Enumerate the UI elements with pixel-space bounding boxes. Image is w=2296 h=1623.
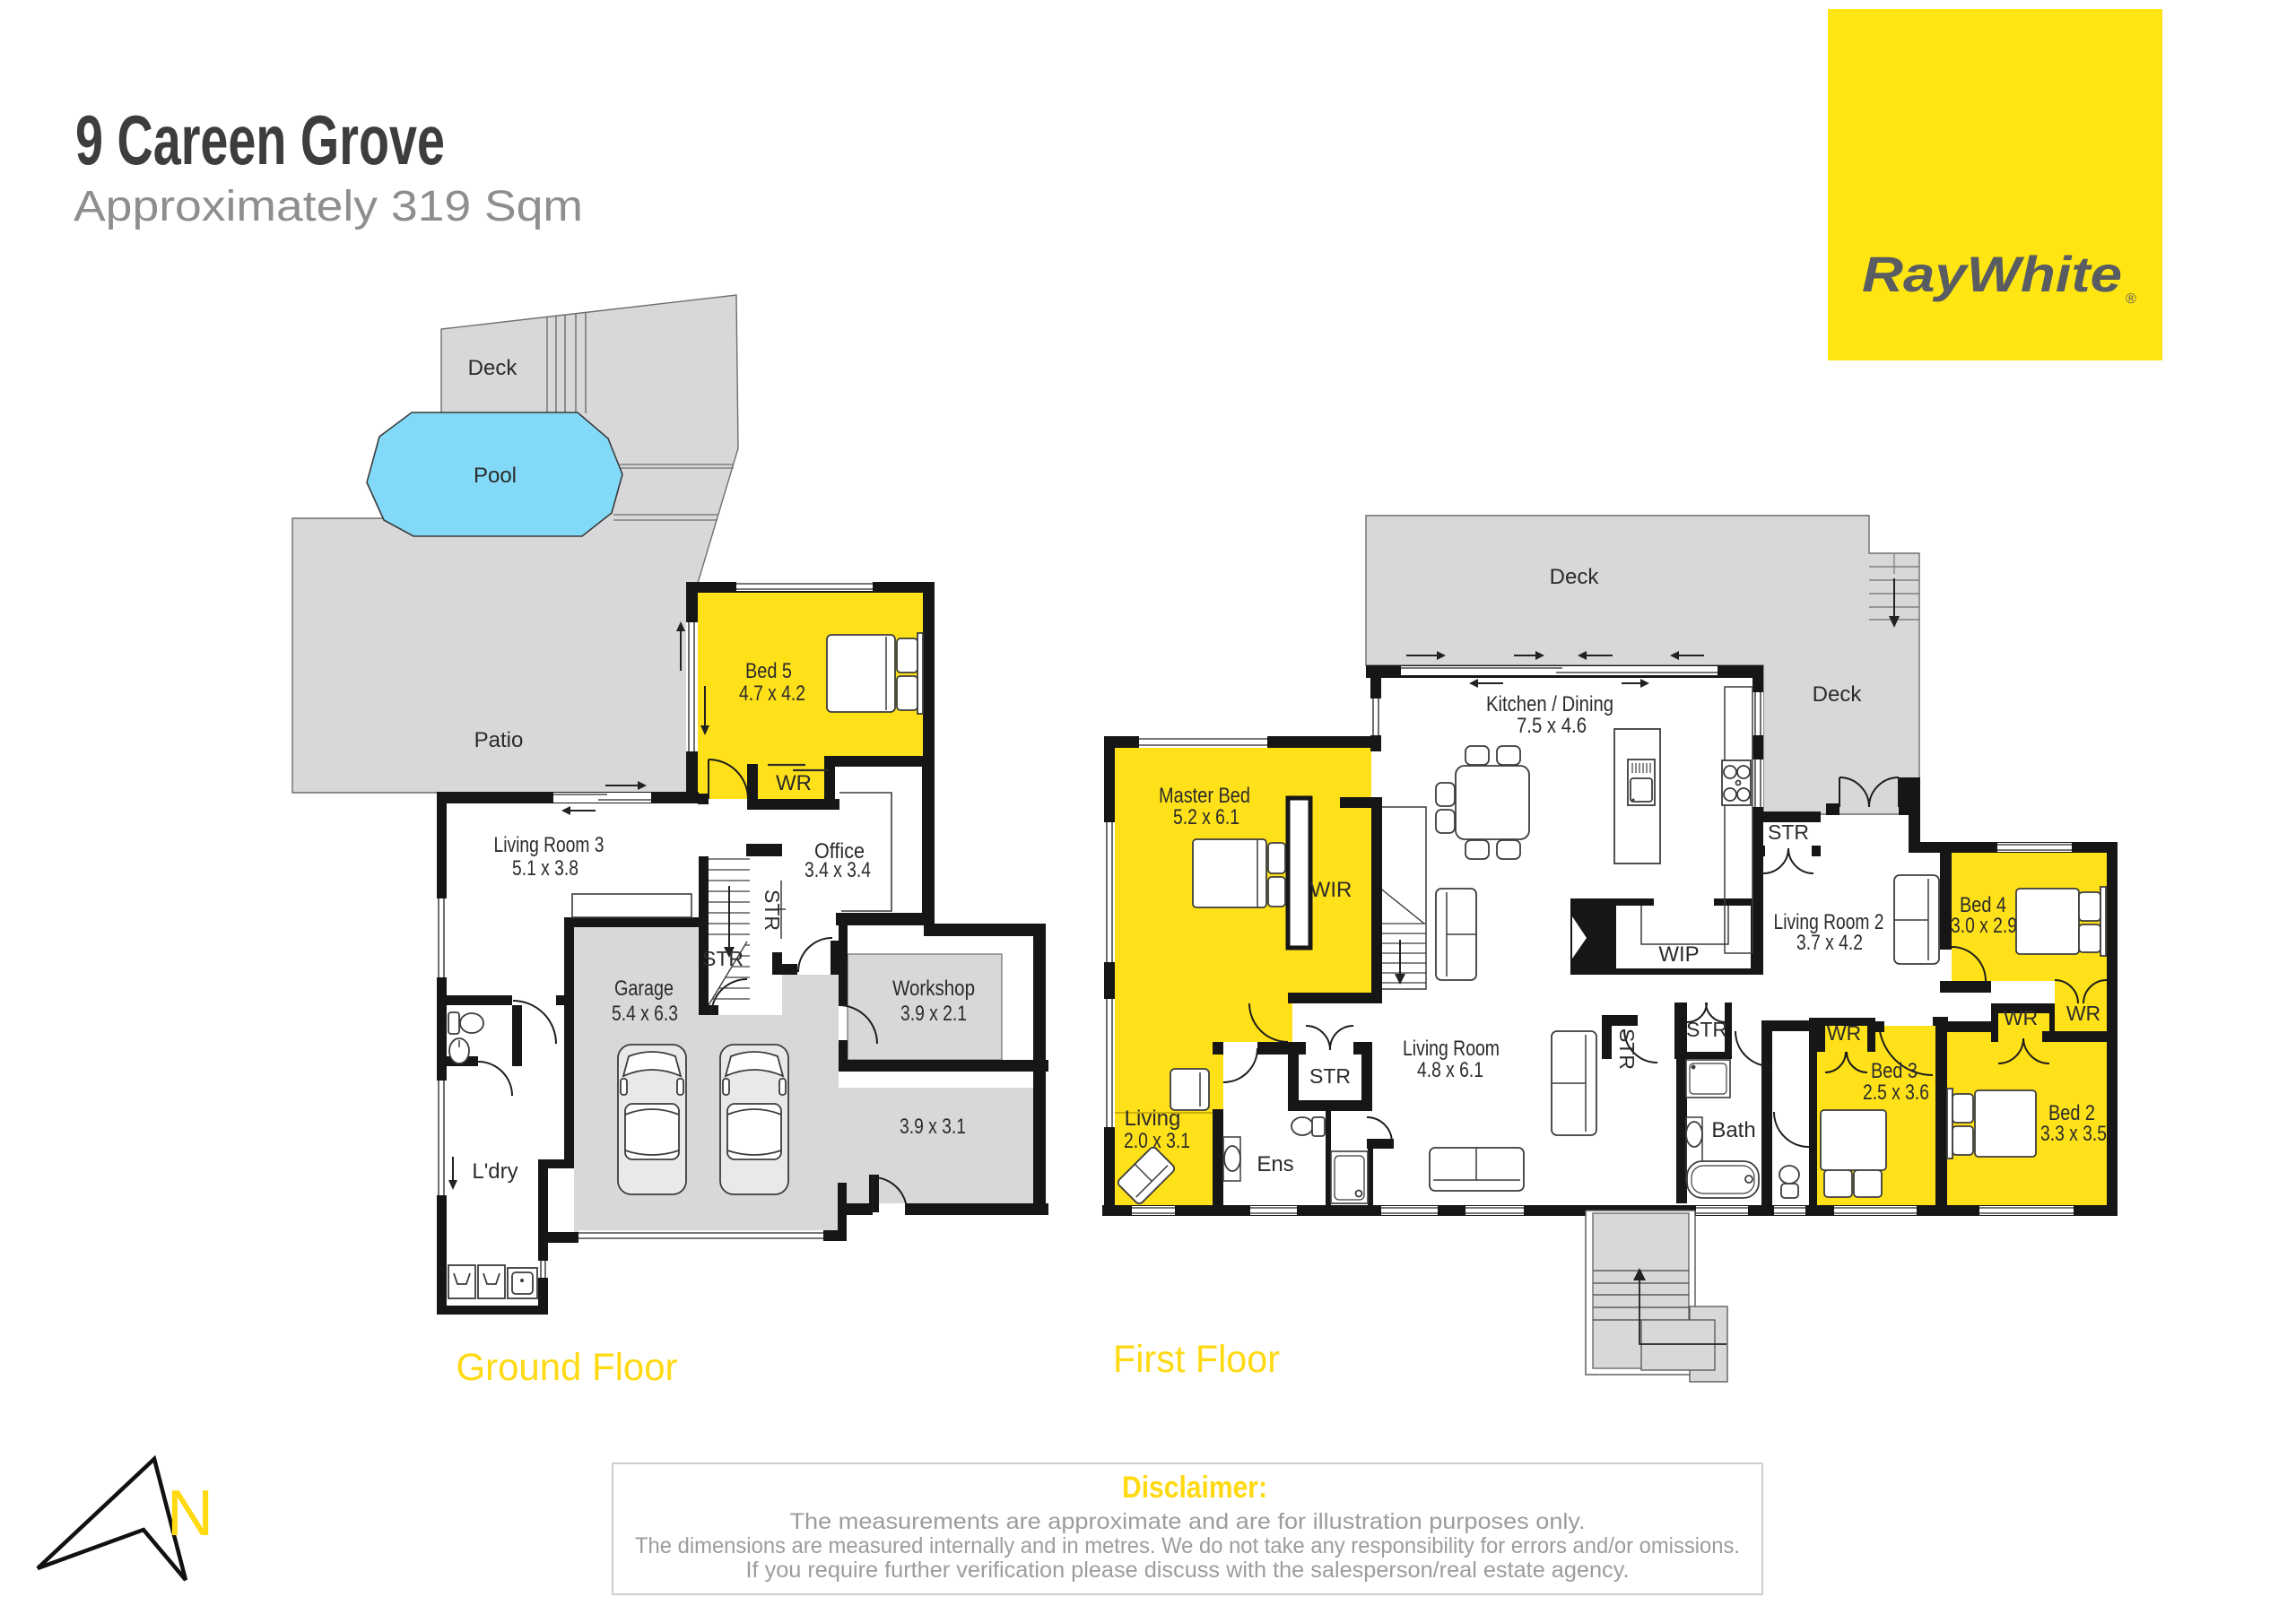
svg-text:STR: STR — [702, 947, 744, 970]
svg-text:STR: STR — [1686, 1018, 1727, 1041]
svg-text:The measurements are approxima: The measurements are approximate and are… — [790, 1509, 1586, 1534]
svg-text:Deck: Deck — [468, 356, 518, 380]
svg-text:4.8 x 6.1: 4.8 x 6.1 — [1417, 1058, 1483, 1082]
svg-text:STR: STR — [1615, 1028, 1639, 1070]
svg-text:Bath: Bath — [1711, 1118, 1755, 1142]
svg-text:5.1 x 3.8: 5.1 x 3.8 — [512, 856, 578, 881]
svg-text:Approximately 319 Sqm: Approximately 319 Sqm — [74, 183, 583, 230]
svg-text:2.5 x 3.6: 2.5 x 3.6 — [1863, 1081, 1929, 1105]
svg-text:Ground Floor: Ground Floor — [457, 1346, 678, 1389]
svg-text:Bed 3: Bed 3 — [1871, 1059, 1918, 1083]
svg-text:Kitchen / Dining: Kitchen / Dining — [1486, 692, 1613, 716]
svg-text:3.9 x 3.1: 3.9 x 3.1 — [900, 1115, 966, 1139]
svg-text:Ens: Ens — [1257, 1152, 1293, 1176]
svg-text:Garage: Garage — [614, 976, 674, 1001]
svg-text:5.2 x 6.1: 5.2 x 6.1 — [1173, 805, 1239, 829]
svg-text:If you require further verific: If you require further verification plea… — [746, 1558, 1630, 1583]
svg-text:Deck: Deck — [1550, 565, 1600, 589]
svg-text:WR: WR — [2004, 1006, 2038, 1029]
svg-text:5.4 x 6.3: 5.4 x 6.3 — [612, 1002, 678, 1026]
svg-text:WIR: WIR — [1310, 878, 1352, 902]
svg-text:WIP: WIP — [1658, 942, 1699, 967]
svg-text:WR: WR — [1827, 1021, 1861, 1045]
svg-text:7.5 x 4.6: 7.5 x 4.6 — [1517, 714, 1587, 738]
svg-text:STR: STR — [761, 890, 784, 931]
svg-text:Bed 5: Bed 5 — [745, 659, 792, 683]
svg-text:Workshop: Workshop — [892, 976, 975, 1001]
svg-text:Master Bed: Master Bed — [1159, 784, 1250, 808]
svg-text:STR: STR — [1309, 1064, 1351, 1088]
svg-text:Deck: Deck — [1813, 682, 1863, 707]
svg-text:Pool: Pool — [474, 464, 517, 488]
svg-text:Living Room 3: Living Room 3 — [494, 833, 604, 857]
svg-text:9 Careen Grove: 9 Careen Grove — [75, 100, 445, 179]
svg-text:The dimensions are measured in: The dimensions are measured internally a… — [635, 1533, 1740, 1558]
svg-text:WR: WR — [2066, 1002, 2100, 1025]
svg-text:3.7 x 4.2: 3.7 x 4.2 — [1796, 931, 1863, 955]
svg-text:L'dry: L'dry — [472, 1159, 517, 1184]
svg-text:Patio: Patio — [474, 728, 524, 752]
svg-text:First Floor: First Floor — [1113, 1338, 1280, 1381]
svg-text:STR: STR — [1768, 820, 1809, 844]
svg-text:RayWhite: RayWhite — [1862, 246, 2122, 302]
svg-text:Living Room: Living Room — [1403, 1037, 1500, 1061]
svg-text:Disclaimer:: Disclaimer: — [1122, 1471, 1267, 1505]
svg-text:WR: WR — [776, 771, 812, 795]
svg-text:N: N — [167, 1478, 213, 1549]
svg-text:3.4 x 3.4: 3.4 x 3.4 — [804, 858, 871, 882]
svg-text:4.7 x 4.2: 4.7 x 4.2 — [739, 681, 805, 706]
svg-text:3.9 x 2.1: 3.9 x 2.1 — [900, 1002, 967, 1026]
svg-text:®: ® — [2126, 291, 2136, 307]
svg-text:3.0 x 2.9: 3.0 x 2.9 — [1951, 914, 2017, 938]
svg-text:3.3 x 3.5: 3.3 x 3.5 — [2040, 1122, 2107, 1146]
